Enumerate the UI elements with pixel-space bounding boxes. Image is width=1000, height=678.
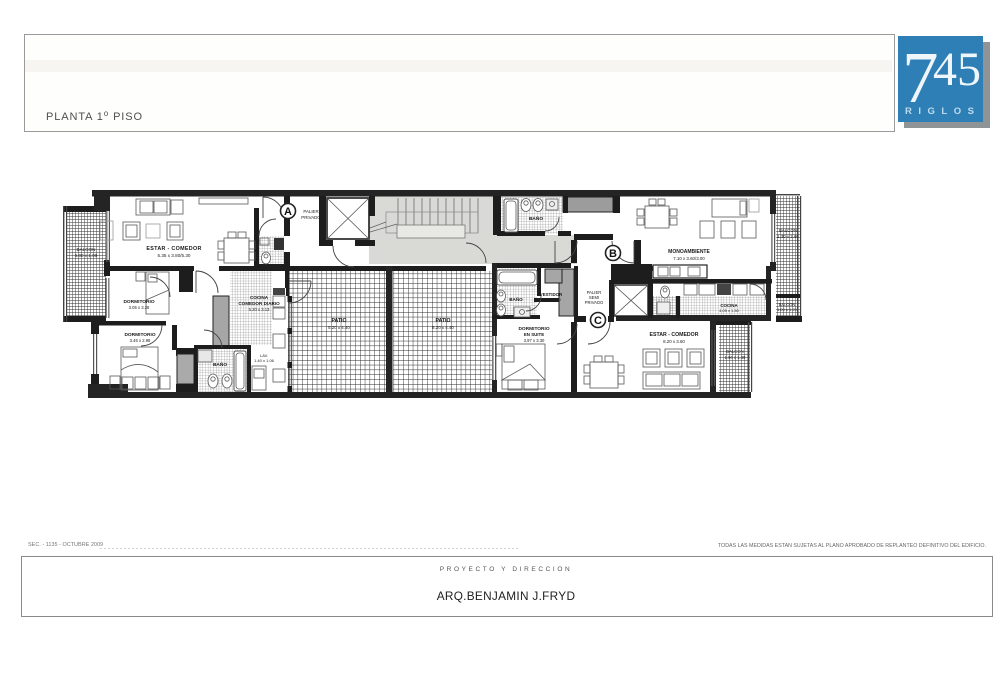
svg-text:BALCON: BALCON bbox=[779, 228, 797, 233]
svg-text:COMEDOR DIARIO: COMEDOR DIARIO bbox=[238, 301, 280, 306]
svg-text:1.00 x 1.20: 1.00 x 1.20 bbox=[777, 307, 798, 312]
svg-text:8.20 x 3.60: 8.20 x 3.60 bbox=[663, 339, 685, 344]
svg-text:BALCON: BALCON bbox=[726, 349, 743, 354]
svg-text:A: A bbox=[284, 206, 292, 218]
svg-text:2.90 x 1.40: 2.90 x 1.40 bbox=[725, 355, 746, 360]
svg-text:EN SUITE: EN SUITE bbox=[524, 332, 544, 337]
svg-text:BAÑO: BAÑO bbox=[213, 361, 227, 368]
svg-text:1.40 x 1.06: 1.40 x 1.06 bbox=[254, 358, 275, 363]
svg-text:ESTAR - COMEDOR: ESTAR - COMEDOR bbox=[650, 332, 699, 338]
svg-text:BALCON: BALCON bbox=[77, 247, 96, 252]
svg-text:5.35 x 3.80/5.30: 5.35 x 3.80/5.30 bbox=[158, 253, 191, 258]
svg-text:3.97 x 3.30: 3.97 x 3.30 bbox=[524, 338, 545, 343]
svg-text:7.10 x 3.60/3.00: 7.10 x 3.60/3.00 bbox=[673, 256, 705, 261]
svg-text:MONOAMBIENTE: MONOAMBIENTE bbox=[668, 249, 710, 255]
svg-text:1.30 x 3.60: 1.30 x 3.60 bbox=[777, 234, 799, 239]
svg-text:6.00 x 1.00: 6.00 x 1.00 bbox=[75, 253, 98, 258]
svg-text:2.10 x 1.60: 2.10 x 1.60 bbox=[541, 297, 562, 302]
svg-text:5.20 x 4.40: 5.20 x 4.40 bbox=[432, 325, 454, 330]
svg-text:5.20 x 3.13: 5.20 x 3.13 bbox=[249, 307, 270, 312]
svg-text:C: C bbox=[594, 315, 602, 327]
svg-text:3.46 x 2.98: 3.46 x 2.98 bbox=[130, 338, 151, 343]
svg-text:PRIVADO: PRIVADO bbox=[301, 215, 321, 220]
svg-text:BAÑO: BAÑO bbox=[529, 215, 543, 222]
svg-text:PATIO: PATIO bbox=[435, 318, 450, 324]
svg-text:ESTAR - COMEDOR: ESTAR - COMEDOR bbox=[146, 246, 201, 252]
svg-text:PALIER: PALIER bbox=[303, 209, 318, 214]
svg-text:PATIO: PATIO bbox=[331, 318, 346, 324]
svg-text:3.05 x 3.28: 3.05 x 3.28 bbox=[129, 305, 150, 310]
svg-text:B: B bbox=[609, 248, 617, 260]
svg-text:BAÑO: BAÑO bbox=[509, 296, 523, 302]
svg-text:5.20 x 4.40: 5.20 x 4.40 bbox=[328, 325, 350, 330]
svg-text:COCINA: COCINA bbox=[250, 295, 269, 300]
svg-text:4.05 x 1.50: 4.05 x 1.50 bbox=[719, 308, 740, 313]
svg-text:PRIVADO: PRIVADO bbox=[585, 300, 604, 305]
